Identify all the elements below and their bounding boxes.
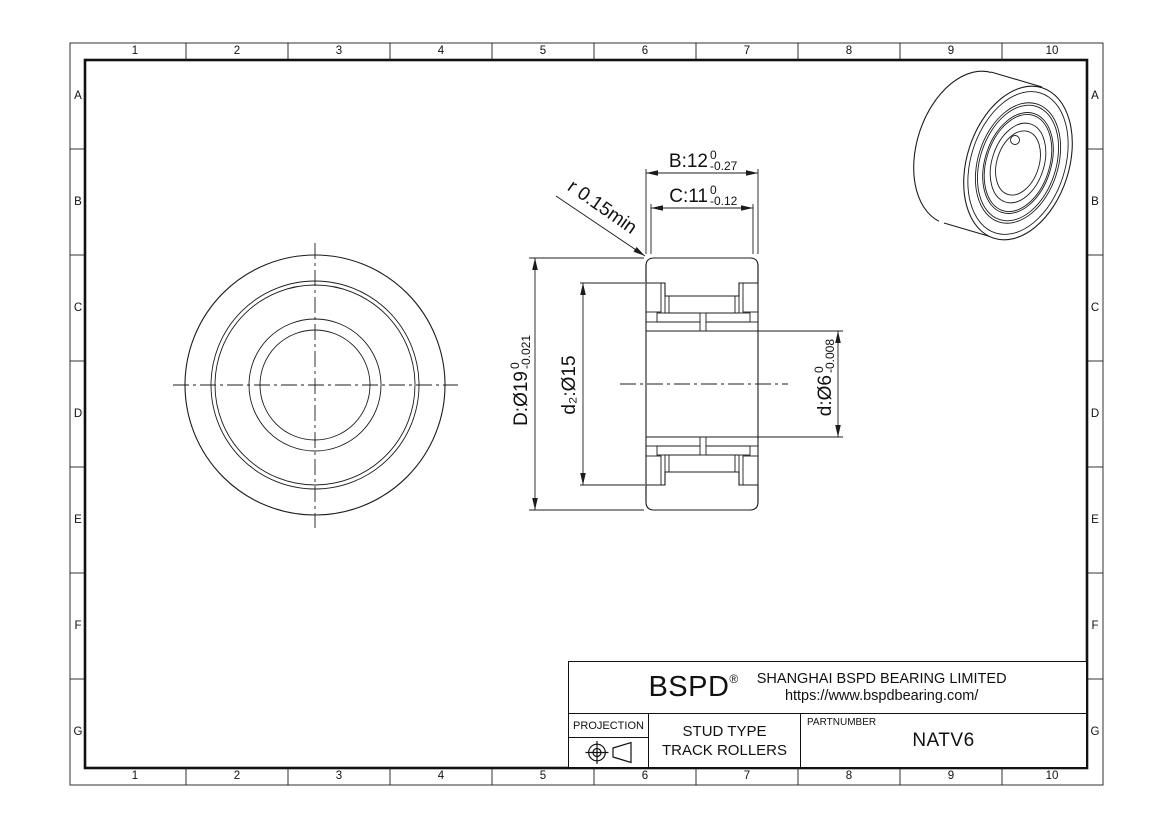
projection-symbol	[569, 738, 648, 767]
svg-text:-0.12: -0.12	[710, 194, 738, 208]
svg-text:-0.008: -0.008	[823, 339, 837, 373]
company-info: SHANGHAI BSPD BEARING LIMITED https://ww…	[757, 671, 1007, 705]
grid-col-label-bottom: 1	[115, 768, 155, 785]
svg-text:C:11: C:11	[669, 186, 708, 207]
svg-text:-0.27: -0.27	[710, 159, 738, 173]
grid-col-label-bottom: 9	[931, 768, 971, 785]
bspd-logo: BSPD®	[648, 671, 738, 704]
company-name: SHANGHAI BSPD BEARING LIMITED	[757, 671, 1007, 688]
grid-col-label-top: 5	[523, 43, 563, 60]
projection-cell: PROJECTION	[569, 714, 649, 767]
grid-col-label-bottom: 10	[1032, 768, 1072, 785]
washer-section	[743, 456, 758, 485]
svg-text:r 0.15min: r 0.15min	[564, 176, 641, 239]
company-website: https://www.bspdbearing.com/	[757, 688, 1007, 705]
partnumber-value: NATV6	[912, 730, 974, 752]
grid-row-label-left: F	[70, 618, 86, 634]
grid-col-label-top: 2	[217, 43, 257, 60]
grid-row-label-right: F	[1087, 618, 1103, 634]
title-block-header: BSPD® SHANGHAI BSPD BEARING LIMITED http…	[569, 662, 1086, 714]
partnumber-label: PARTNUMBER	[807, 717, 876, 728]
grid-row-label-right: E	[1087, 512, 1103, 528]
product-line2: TRACK ROLLERS	[662, 741, 787, 760]
outer-ring-bottom-section	[646, 472, 758, 510]
grid-col-label-top: 4	[421, 43, 461, 60]
grid-col-label-bottom: 4	[421, 768, 461, 785]
grid-row-label-left: A	[70, 88, 86, 104]
grid-row-label-right: C	[1087, 300, 1103, 316]
outer-ring-top-section	[646, 258, 758, 296]
grid-col-label-bottom: 5	[523, 768, 563, 785]
svg-text:-0.021: -0.021	[519, 335, 533, 369]
svg-text:D:Ø19: D:Ø19	[511, 371, 532, 426]
logo-text: BSPD	[648, 671, 729, 703]
first-angle-projection-icon	[585, 739, 633, 766]
grid-col-label-bottom: 3	[319, 768, 359, 785]
dimension-r: r 0.15min	[556, 176, 645, 256]
grid-col-label-top: 10	[1032, 43, 1072, 60]
grid-row-label-left: B	[70, 194, 86, 210]
grid-row-label-left: G	[70, 724, 86, 740]
partnumber-cell: PARTNUMBER NATV6	[801, 714, 1086, 767]
title-block: BSPD® SHANGHAI BSPD BEARING LIMITED http…	[568, 661, 1087, 768]
grid-row-label-right: A	[1087, 88, 1103, 104]
washer-section	[743, 283, 758, 312]
grid-col-label-top: 6	[625, 43, 665, 60]
projection-label: PROJECTION	[569, 714, 648, 738]
front-view	[173, 243, 458, 528]
dimension-C: C:11 0 -0.12	[651, 183, 753, 254]
product-line1: STUD TYPE	[683, 722, 767, 741]
grid-col-label-bottom: 8	[829, 768, 869, 785]
registered-trademark-mark: ®	[729, 672, 738, 686]
isometric-view	[895, 57, 1091, 254]
grid-row-label-right: G	[1087, 724, 1103, 740]
grid-row-label-left: E	[70, 512, 86, 528]
grid-col-label-top: 7	[727, 43, 767, 60]
product-title-cell: STUD TYPE TRACK ROLLERS	[649, 714, 801, 767]
grid-col-label-top: 3	[319, 43, 359, 60]
svg-text:d₂:Ø15: d₂:Ø15	[559, 355, 580, 414]
grid-row-label-left: C	[70, 300, 86, 316]
washer-section	[646, 283, 661, 312]
grid-row-label-left: D	[70, 406, 86, 422]
svg-text:B:12: B:12	[669, 151, 708, 172]
drawing-sheet: B:12 0 -0.27 C:11 0 -0.12 D:Ø19 0 -0.021	[0, 0, 1170, 827]
grid-col-label-bottom: 2	[217, 768, 257, 785]
grid-col-label-bottom: 7	[727, 768, 767, 785]
grid-row-label-right: B	[1087, 194, 1103, 210]
section-view	[620, 258, 788, 510]
grid-col-label-top: 9	[931, 43, 971, 60]
grid-row-label-right: D	[1087, 406, 1103, 422]
grid-col-label-bottom: 6	[625, 768, 665, 785]
svg-text:d:Ø6: d:Ø6	[815, 375, 836, 416]
washer-section	[646, 456, 661, 485]
title-block-lower: PROJECTION STUD TYPE TRACK ROLLERS PARTN…	[569, 714, 1086, 767]
grid-col-label-top: 1	[115, 43, 155, 60]
grid-col-label-top: 8	[829, 43, 869, 60]
